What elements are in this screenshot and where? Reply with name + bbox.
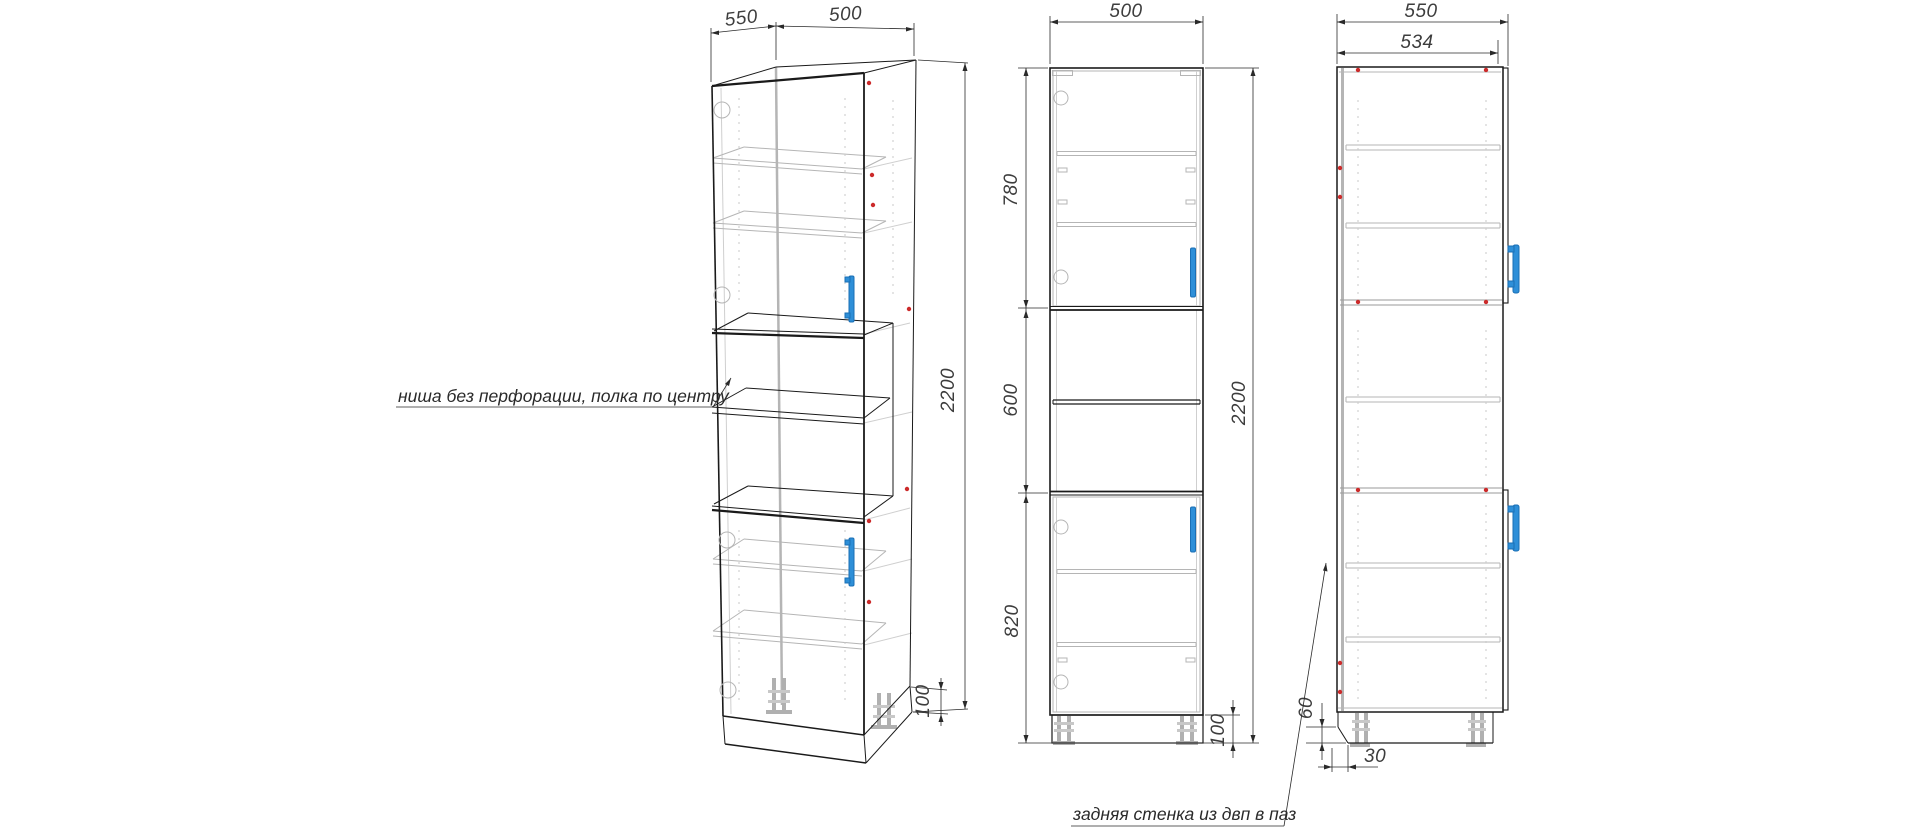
back-note-leader-arrow-icon	[1323, 563, 1328, 572]
front-carcass	[1050, 68, 1203, 743]
front-lower-door-handle-icon	[1191, 507, 1196, 552]
front-upper-door-handle-icon	[1191, 248, 1196, 297]
front-interior	[1053, 71, 1201, 713]
front-dim-middle: 600	[1001, 383, 1022, 416]
iso-dimensions: 550 500 2200 100	[711, 3, 968, 726]
side-door-handles	[1508, 245, 1519, 551]
front-dim-plinth: 100	[1208, 713, 1229, 746]
drawing-svg: 550 500 2200 100	[0, 0, 1920, 834]
side-dimensions: 550 534 60 30	[1296, 1, 1508, 772]
iso-dim-plinth: 100	[913, 684, 934, 717]
front-dim-lower: 820	[1002, 604, 1023, 637]
side-lower-door-handle-icon	[1508, 505, 1519, 551]
side-dim-plinth-recess: 30	[1364, 746, 1386, 767]
iso-door-handles	[845, 276, 854, 586]
side-upper-door-handle-icon	[1508, 245, 1519, 293]
side-dim-depth: 550	[1404, 1, 1437, 22]
iso-dim-height: 2200	[938, 368, 959, 413]
back-note-text: задняя стенка из двп в паз	[1072, 804, 1296, 824]
side-legs	[1350, 713, 1486, 747]
cabinet-technical-drawing: 550 500 2200 100	[0, 0, 1920, 834]
front-dim-upper: 780	[1001, 173, 1022, 206]
iso-dim-width: 500	[828, 3, 863, 26]
iso-interior	[713, 67, 912, 714]
side-interior	[1338, 68, 1502, 711]
iso-lower-door-handle-icon	[845, 538, 854, 586]
front-dim-width: 500	[1109, 1, 1142, 22]
side-screw-marks	[1338, 68, 1488, 694]
isometric-view: 550 500 2200 100	[711, 3, 968, 763]
annotation-niche: ниша без перфорации, полка по центру	[396, 378, 731, 407]
side-dim-back-offset: 60	[1296, 697, 1317, 719]
front-view: 500 780 600 820 2200	[1001, 1, 1259, 758]
iso-dim-depth: 550	[724, 6, 760, 31]
side-dim-inner-depth: 534	[1400, 32, 1433, 53]
iso-niche	[712, 313, 893, 523]
iso-upper-door-handle-icon	[845, 276, 854, 322]
side-view: 550 534 60 30	[1296, 1, 1519, 772]
annotation-back-wall: задняя стенка из двп в паз	[1071, 563, 1328, 826]
front-legs	[1053, 716, 1198, 745]
front-dimensions: 500 780 600 820 2200	[1001, 1, 1259, 758]
front-dim-height: 2200	[1229, 381, 1250, 426]
niche-note-text: ниша без перфорации, полка по центру	[398, 386, 730, 406]
